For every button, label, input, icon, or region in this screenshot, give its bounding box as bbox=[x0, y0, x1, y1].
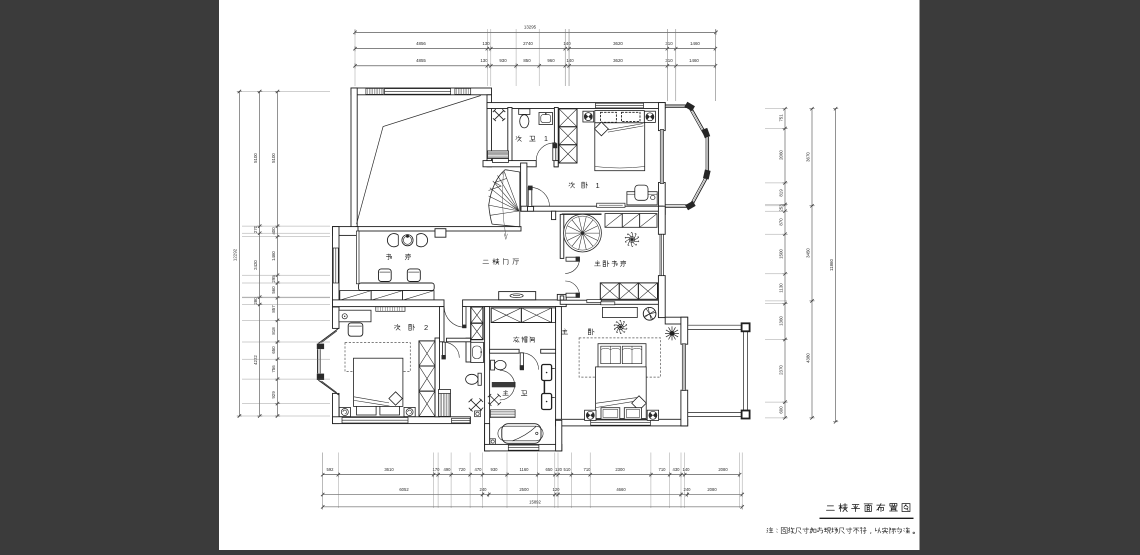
svg-text:15892: 15892 bbox=[529, 499, 541, 504]
svg-text:490: 490 bbox=[444, 467, 452, 472]
svg-text:720: 720 bbox=[459, 467, 467, 472]
svg-text:2500: 2500 bbox=[519, 487, 529, 492]
svg-text:253: 253 bbox=[779, 204, 784, 212]
svg-text:710: 710 bbox=[584, 467, 592, 472]
svg-text:857: 857 bbox=[271, 305, 276, 313]
svg-text:4660: 4660 bbox=[616, 487, 626, 492]
svg-text:140: 140 bbox=[566, 58, 574, 63]
svg-text:140: 140 bbox=[683, 467, 691, 472]
svg-text:4222: 4222 bbox=[253, 355, 258, 365]
svg-text:270: 270 bbox=[253, 225, 258, 233]
svg-text:3610: 3610 bbox=[384, 467, 394, 472]
svg-text:3670: 3670 bbox=[806, 152, 811, 162]
svg-text:130: 130 bbox=[482, 41, 490, 46]
svg-text:560: 560 bbox=[271, 286, 276, 294]
svg-text:650: 650 bbox=[546, 467, 554, 472]
svg-text:2300: 2300 bbox=[615, 467, 625, 472]
svg-text:819: 819 bbox=[779, 189, 784, 197]
svg-text:2370: 2370 bbox=[779, 365, 784, 375]
svg-text:2740: 2740 bbox=[523, 41, 533, 46]
svg-text:1360: 1360 bbox=[779, 316, 784, 326]
svg-text:2080: 2080 bbox=[718, 467, 728, 472]
svg-text:1460: 1460 bbox=[271, 251, 276, 261]
svg-text:4855: 4855 bbox=[416, 58, 426, 63]
svg-text:960: 960 bbox=[547, 58, 555, 63]
svg-text:850: 850 bbox=[523, 58, 531, 63]
svg-text:140: 140 bbox=[563, 41, 571, 46]
svg-text:1460: 1460 bbox=[690, 41, 700, 46]
svg-text:5100: 5100 bbox=[253, 153, 258, 163]
svg-text:710: 710 bbox=[659, 467, 667, 472]
svg-text:240: 240 bbox=[480, 487, 488, 492]
svg-text:929: 929 bbox=[271, 391, 276, 399]
svg-text:12292: 12292 bbox=[233, 248, 238, 261]
svg-text:5100: 5100 bbox=[271, 153, 276, 163]
svg-text:870: 870 bbox=[779, 218, 784, 226]
svg-text:295: 295 bbox=[271, 275, 276, 283]
svg-text:2080: 2080 bbox=[707, 487, 717, 492]
svg-text:818: 818 bbox=[271, 327, 276, 335]
svg-text:3450: 3450 bbox=[806, 248, 811, 258]
svg-text:3620: 3620 bbox=[613, 41, 623, 46]
svg-text:930: 930 bbox=[499, 58, 507, 63]
svg-text:4856: 4856 bbox=[416, 41, 426, 46]
svg-text:1130: 1130 bbox=[779, 283, 784, 293]
svg-text:310: 310 bbox=[665, 41, 673, 46]
svg-text:6052: 6052 bbox=[399, 487, 409, 492]
svg-text:751: 751 bbox=[779, 114, 784, 122]
svg-text:13295: 13295 bbox=[524, 25, 537, 30]
svg-text:1: 1 bbox=[544, 135, 548, 143]
svg-text:650: 650 bbox=[271, 346, 276, 354]
svg-text:592: 592 bbox=[327, 467, 335, 472]
svg-text:310: 310 bbox=[665, 58, 673, 63]
svg-text:2060: 2060 bbox=[779, 150, 784, 160]
svg-text:3620: 3620 bbox=[613, 58, 623, 63]
svg-text:400: 400 bbox=[271, 227, 276, 235]
svg-text:130: 130 bbox=[480, 58, 488, 63]
svg-text:2420: 2420 bbox=[253, 260, 258, 270]
svg-text:1160: 1160 bbox=[519, 467, 529, 472]
svg-text:120: 120 bbox=[553, 487, 561, 492]
svg-text:756: 756 bbox=[271, 365, 276, 373]
svg-text:510: 510 bbox=[564, 467, 572, 472]
svg-text:600: 600 bbox=[779, 406, 784, 414]
svg-text:4380: 4380 bbox=[806, 353, 811, 363]
svg-text:470: 470 bbox=[475, 467, 483, 472]
svg-text:1: 1 bbox=[596, 181, 600, 190]
svg-text:120: 120 bbox=[555, 467, 563, 472]
svg-text:1500: 1500 bbox=[779, 249, 784, 259]
svg-text:2: 2 bbox=[424, 323, 428, 332]
svg-text:930: 930 bbox=[491, 467, 499, 472]
svg-text:430: 430 bbox=[673, 467, 681, 472]
svg-text:1460: 1460 bbox=[689, 58, 699, 63]
svg-text:11860: 11860 bbox=[829, 259, 834, 271]
